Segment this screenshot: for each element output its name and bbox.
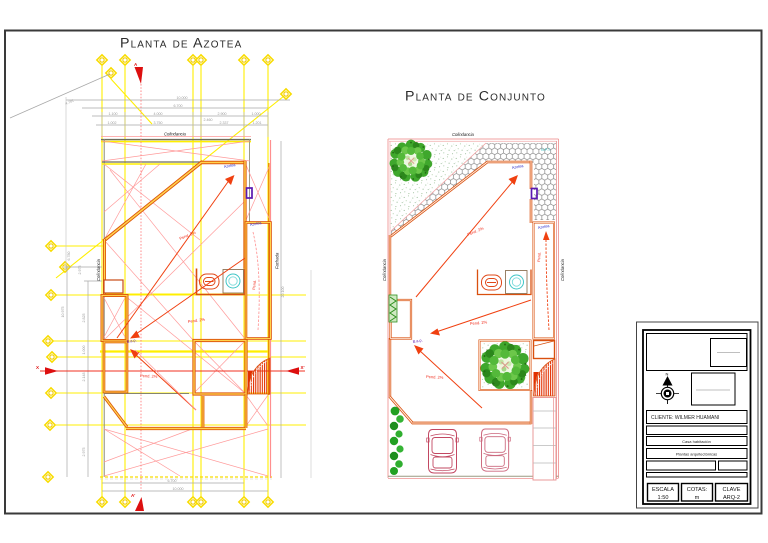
svg-text:m: m [695,495,700,501]
svg-text:6.780: 6.780 [67,252,71,261]
svg-text:A': A' [131,493,135,498]
svg-text:Planta de Conjunto: Planta de Conjunto [405,89,546,105]
svg-text:N: N [666,372,669,377]
svg-text:4.000: 4.000 [154,112,163,116]
svg-text:6.700: 6.700 [174,104,183,108]
svg-text:2.975: 2.975 [82,448,86,457]
svg-text:X': X' [301,365,305,370]
svg-text:Colindancia: Colindancia [452,132,475,137]
svg-text:1.100: 1.100 [109,112,118,116]
svg-text:CLIENTE: WILMER HUAMANI: CLIENTE: WILMER HUAMANI [651,415,719,421]
svg-text:COTAS:: COTAS: [687,487,708,493]
svg-text:1.000: 1.000 [252,112,261,116]
svg-text:2.148: 2.148 [82,373,86,382]
svg-text:Pend. 2%: Pend. 2% [426,374,444,380]
svg-text:1.000: 1.000 [82,346,86,355]
svg-text:2.975: 2.975 [78,266,82,275]
svg-text:1.002: 1.002 [108,121,117,125]
svg-text:Colindancia: Colindancia [164,132,187,137]
svg-text:ESCALA: ESCALA [652,487,674,493]
svg-text:2.460: 2.460 [204,118,213,122]
svg-text:X: X [36,365,39,370]
svg-text:20.100: 20.100 [281,287,285,298]
svg-text:Pend.: Pend. [537,252,542,262]
svg-text:Casa habitación: Casa habitación [682,439,711,444]
svg-text:Pend. 2%: Pend. 2% [140,373,158,379]
svg-text:Fachada: Fachada [275,252,280,269]
svg-text:N.P.T.: N.P.T. [541,148,551,152]
svg-text:Colindancia: Colindancia [560,258,565,281]
svg-text:Colindancia: Colindancia [382,258,387,281]
svg-text:ARQ-2: ARQ-2 [723,495,740,501]
svg-text:Colindancia: Colindancia [96,258,101,281]
svg-text:CLAVE: CLAVE [723,487,741,493]
svg-text:2.825: 2.825 [82,314,86,323]
svg-text:1:50: 1:50 [658,495,669,501]
svg-text:10.975: 10.975 [61,307,65,318]
svg-text:Plantas arquitectónicas: Plantas arquitectónicas [676,452,717,457]
svg-text:10.000: 10.000 [177,96,188,100]
svg-text:2.337: 2.337 [220,121,229,125]
svg-text:2.900: 2.900 [218,112,227,116]
svg-text:1.201: 1.201 [253,121,262,125]
svg-text:10.000: 10.000 [173,487,184,491]
svg-text:3.750: 3.750 [154,121,163,125]
svg-text:6.700: 6.700 [168,479,177,483]
svg-text:Planta de Azotea: Planta de Azotea [120,36,242,52]
